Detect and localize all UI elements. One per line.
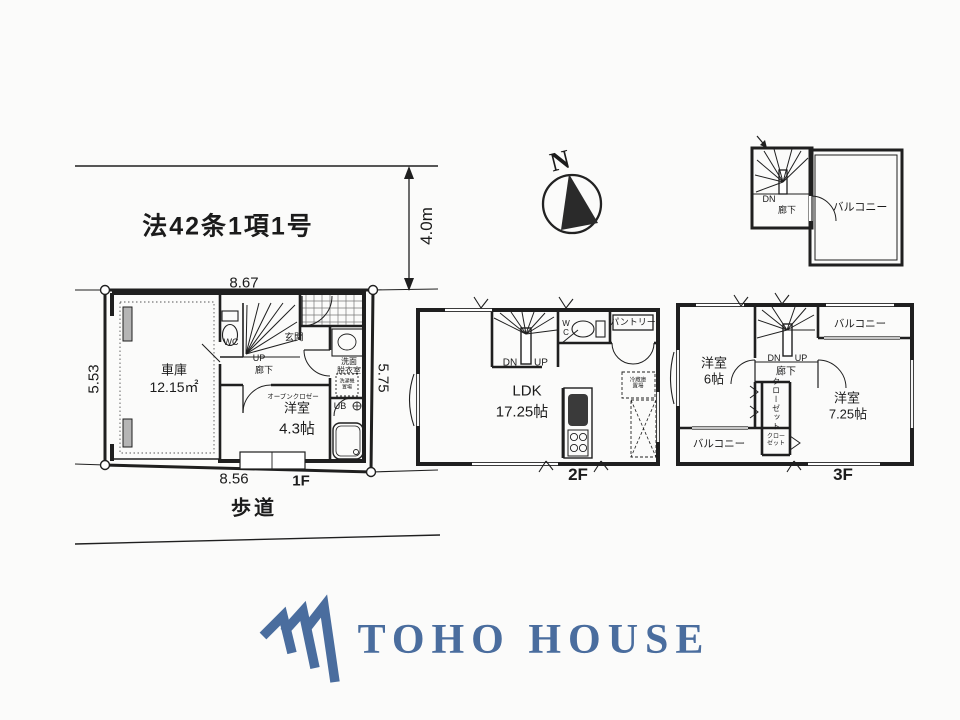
dn-roof-label: DN: [763, 194, 776, 204]
ldk-label: LDK: [512, 382, 541, 399]
bedroom3a-label: 洋室: [701, 357, 727, 372]
up3-label: UP: [795, 353, 808, 363]
balcony-bottom-label: バルコニー: [693, 438, 745, 450]
dn3-label: DN: [768, 353, 781, 363]
wc1-label: WC: [224, 337, 239, 347]
garage-label: 車庫: [161, 364, 187, 379]
wc2-label: WC: [562, 319, 570, 337]
up1-label: UP: [253, 353, 266, 363]
dimension-top: 8.67: [229, 274, 258, 291]
floor2-label: 2F: [568, 465, 588, 485]
bedroom1f-label: 洋室: [284, 402, 310, 417]
dn2-label: DN: [503, 357, 517, 369]
balcony-roof-label: バルコニー: [833, 202, 888, 215]
floor3-label: 3F: [833, 465, 853, 485]
bedroom3b-area-label: 7.25帖: [829, 408, 867, 423]
up2-label: UP: [534, 357, 548, 369]
bedroom3a-area-label: 6帖: [704, 373, 724, 388]
garage-area-label: 12.15㎡: [149, 379, 198, 395]
toho-house-logo-text: TOHO HOUSE: [358, 616, 711, 664]
ldk-area-label: 17.25帖: [496, 403, 549, 420]
balcony-top-label: バルコニー: [834, 318, 886, 330]
bedroom3b-label: 洋室: [834, 392, 860, 407]
floor-plan-canvas: 法42条1項1号 4.0m 8.67 5.53 5.75 8.56 1F 歩道 …: [0, 0, 960, 720]
hall1-label: 廊下: [255, 365, 273, 375]
closet-vertical-label: クローゼット: [771, 377, 780, 431]
pantry-label: パントリー: [610, 317, 655, 327]
floor1-label: 1F: [292, 472, 310, 489]
regulation-label: 法42条1項1号: [142, 213, 314, 242]
unit-bath-label: UB: [334, 401, 347, 411]
hall-roof-label: 廊下: [778, 205, 796, 215]
dimension-right: 5.75: [374, 363, 391, 392]
fridge-label: 冷蔵庫置場: [630, 378, 647, 391]
sidewalk-label: 歩道: [231, 498, 277, 521]
laundry-label: 洗濯機置場: [339, 379, 354, 391]
road-width-dimension: 4.0m: [417, 207, 437, 245]
washroom-label: 洗面脱衣室: [337, 357, 361, 375]
closet-small-label: クローゼット: [767, 434, 785, 448]
plan-linework: [0, 0, 960, 720]
entrance-label: 玄関: [284, 334, 303, 345]
bedroom1f-area-label: 4.3帖: [279, 420, 315, 437]
north-arrow-icon: [543, 174, 601, 233]
dimension-left: 5.53: [85, 364, 102, 393]
toho-house-logo-icon: [263, 606, 335, 682]
dimension-bottom: 8.56: [219, 470, 248, 487]
